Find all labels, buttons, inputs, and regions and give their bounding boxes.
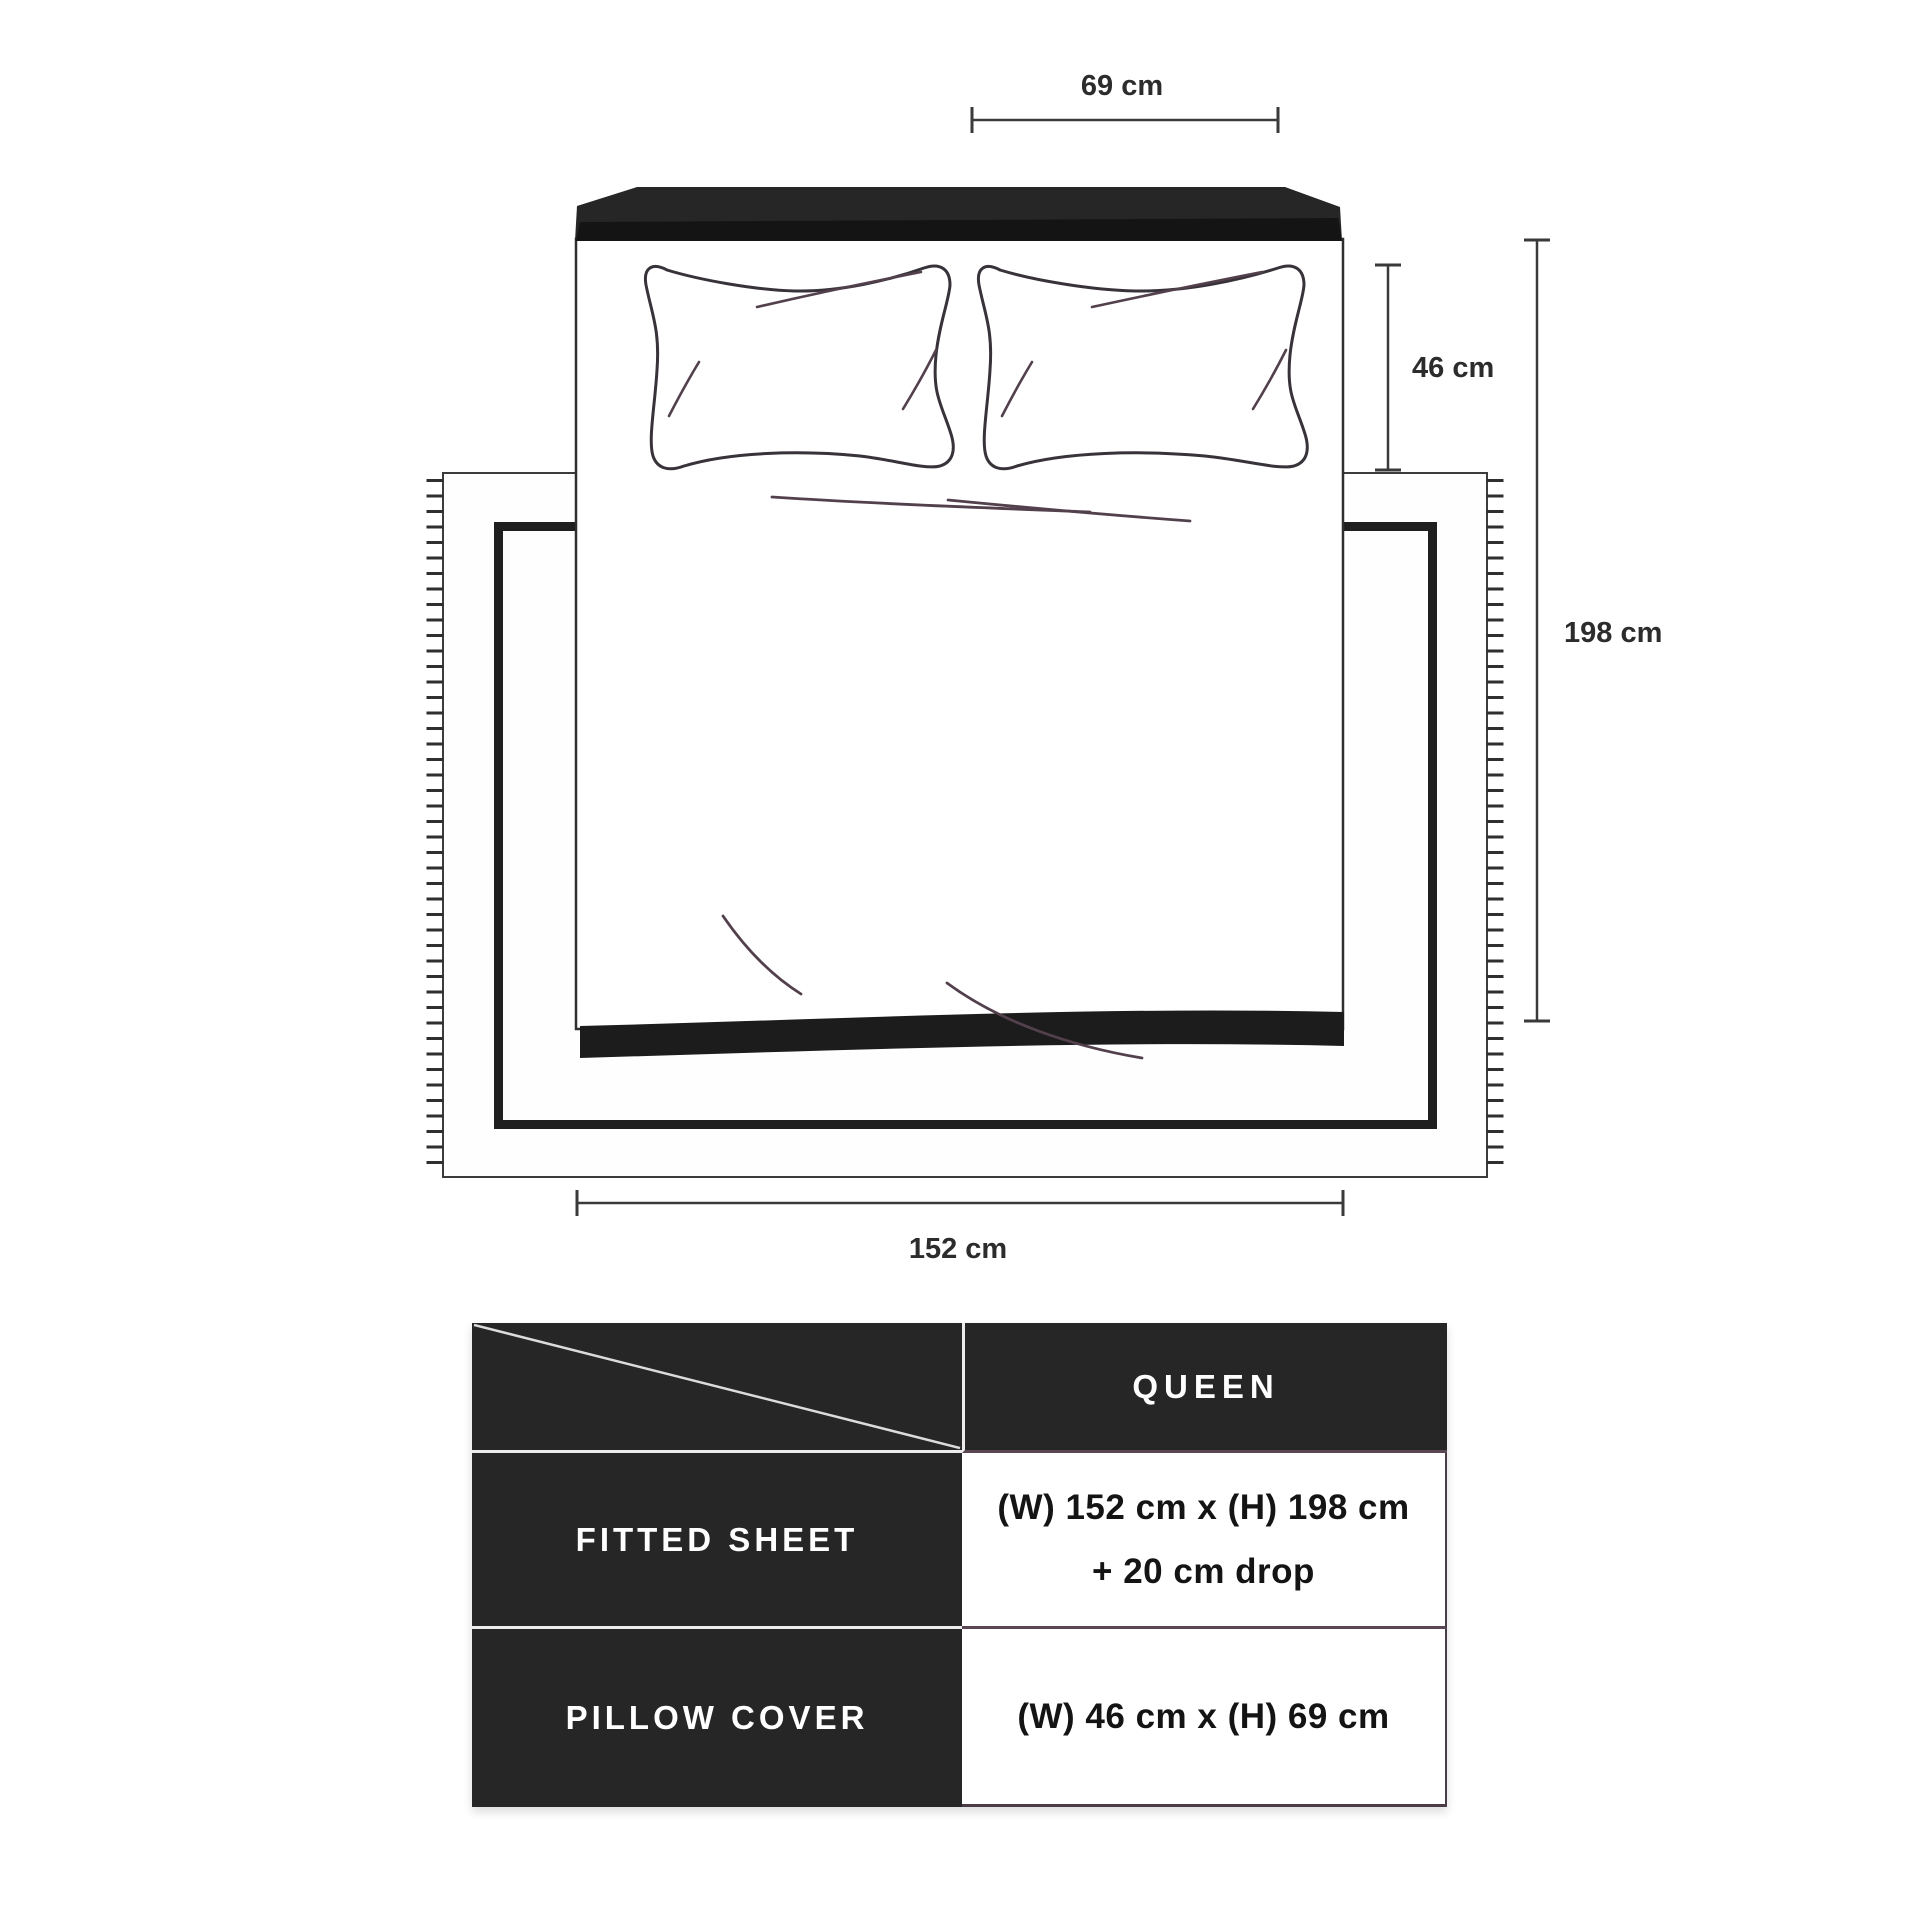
headboard (575, 187, 1342, 241)
dimension-label-pillow-width: 69 cm (1081, 70, 1163, 102)
cell-pillow-cover-size: (W) 46 cm x (H) 69 cm (962, 1629, 1447, 1807)
table-corner-cell (472, 1323, 962, 1453)
fitted-sheet-size-line1: (W) 152 cm x (H) 198 cm (997, 1476, 1409, 1540)
dimension-label-pillow-height: 46 cm (1412, 352, 1494, 384)
row-label-pillow-cover: PILLOW COVER (472, 1629, 962, 1807)
headboard-shadow (576, 218, 1342, 241)
cell-fitted-sheet-size: (W) 152 cm x (H) 198 cm + 20 cm drop (962, 1453, 1447, 1629)
dimension-pillow-height (1375, 265, 1401, 470)
table-header-queen: QUEEN (962, 1323, 1447, 1453)
dimension-label-bed-length: 198 cm (1564, 617, 1662, 649)
corner-diagonal-line (472, 1323, 962, 1450)
dimension-label-bed-width: 152 cm (909, 1233, 1007, 1265)
dimension-bed-width (577, 1190, 1343, 1216)
dimension-pillow-width (972, 107, 1278, 133)
fitted-sheet-size-line2: + 20 cm drop (1092, 1540, 1315, 1604)
size-chart-table: QUEEN FITTED SHEET (W) 152 cm x (H) 198 … (472, 1323, 1447, 1807)
row-label-fitted-sheet: FITTED SHEET (472, 1453, 962, 1629)
bed-top-view-diagram: 69 cm 46 cm 198 cm 152 cm (0, 0, 1920, 1320)
pillow-cover-size-line1: (W) 46 cm x (H) 69 cm (1017, 1685, 1389, 1749)
dimension-bed-length (1524, 240, 1550, 1021)
